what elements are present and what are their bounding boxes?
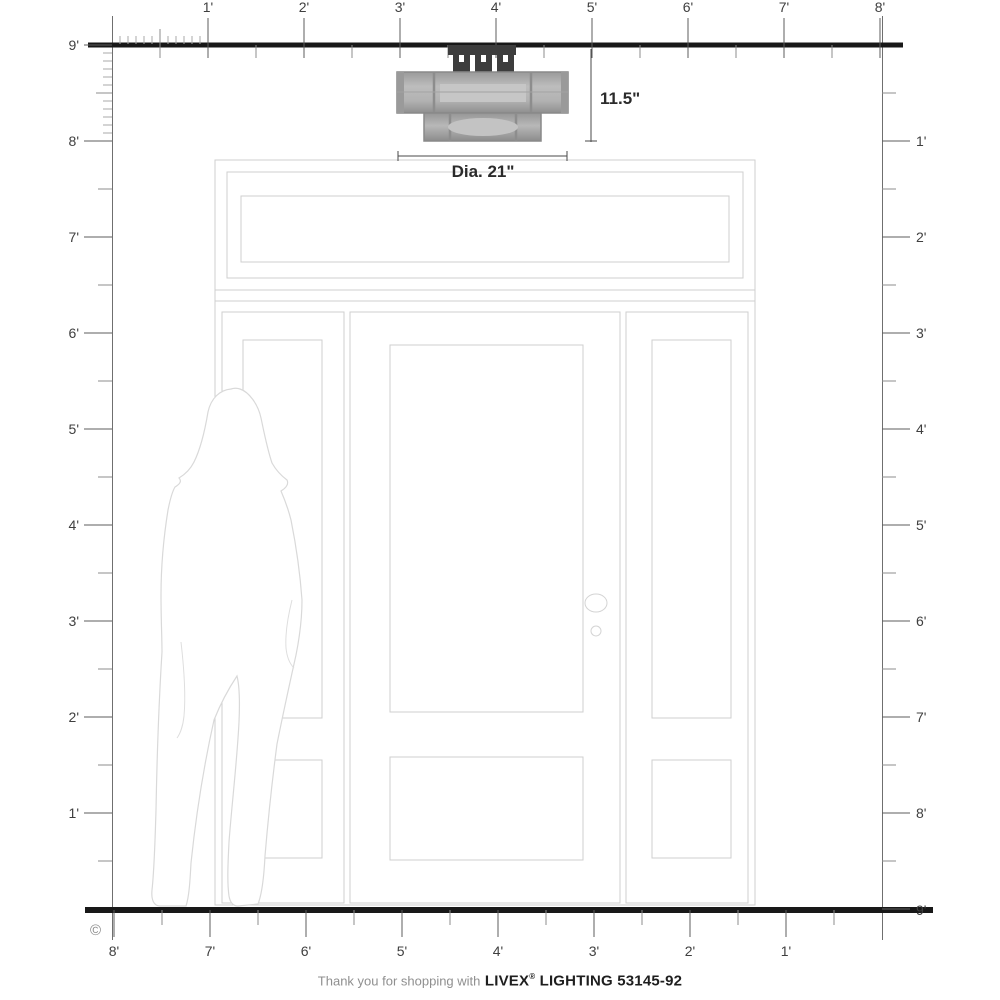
left-label-7ft: 7'	[69, 229, 79, 245]
bottom-ruler-labels: 8' 7' 6' 5' 4' 3' 2' 1'	[109, 943, 791, 959]
caption-prefix: Thank you for shopping with	[318, 973, 481, 988]
right-sidelight-upper-panel	[652, 340, 731, 718]
door-knob	[585, 594, 607, 612]
diagram-canvas: 11.5" Dia. 21" 1' 2' 3' 4' 5' 6' 7' 8' 9…	[0, 0, 1000, 1000]
top-label-1ft: 1'	[203, 0, 213, 15]
left-ruler-ticks	[84, 45, 112, 813]
product-model-number: LIGHTING 53145-92	[540, 972, 683, 989]
copyright-symbol: ©	[90, 922, 101, 939]
light-fixture	[397, 45, 568, 141]
right-label-3ft: 3'	[916, 325, 926, 341]
bottom-label-3ft: 3'	[589, 943, 599, 959]
top-label-3ft: 3'	[395, 0, 405, 15]
door-drawing	[215, 160, 755, 905]
right-label-2ft: 2'	[916, 229, 926, 245]
right-label-5ft: 5'	[916, 517, 926, 533]
bottom-label-6ft: 6'	[301, 943, 311, 959]
top-label-2ft: 2'	[299, 0, 309, 15]
top-label-8ft: 8'	[875, 0, 885, 15]
brand-name: LIVEX	[485, 972, 529, 989]
right-label-6ft: 6'	[916, 613, 926, 629]
right-ruler-half-ticks	[882, 93, 896, 861]
top-label-4ft: 4'	[491, 0, 501, 15]
human-silhouette	[152, 388, 302, 906]
left-label-4ft: 4'	[69, 517, 79, 533]
bottom-label-5ft: 5'	[397, 943, 407, 959]
right-sidelight	[626, 312, 748, 903]
left-label-2ft: 2'	[69, 709, 79, 725]
silhouette-outline	[152, 388, 302, 906]
bottom-label-2ft: 2'	[685, 943, 695, 959]
door-outer-frame	[215, 160, 755, 905]
right-ruler-labels: 1' 2' 3' 4' 5' 6' 7' 8' 9'	[916, 133, 926, 918]
right-sidelight-lower-panel	[652, 760, 731, 858]
door-deadbolt	[591, 626, 601, 636]
scale-diagram: 11.5" Dia. 21" 1' 2' 3' 4' 5' 6' 7' 8' 9…	[0, 0, 1000, 1000]
top-label-7ft: 7'	[779, 0, 789, 15]
bottom-label-8ft: 8'	[109, 943, 119, 959]
registered-trademark-symbol: ®	[529, 972, 535, 981]
left-label-5ft: 5'	[69, 421, 79, 437]
top-label-6ft: 6'	[683, 0, 693, 15]
right-label-4ft: 4'	[916, 421, 926, 437]
fixture-height-label: 11.5"	[600, 89, 640, 108]
bottom-label-1ft: 1'	[781, 943, 791, 959]
top-ruler-labels: 1' 2' 3' 4' 5' 6' 7' 8'	[203, 0, 885, 15]
left-ruler-half-ticks	[96, 93, 112, 861]
right-ruler-ticks	[882, 141, 910, 909]
left-label-8ft: 8'	[69, 133, 79, 149]
left-label-9ft: 9'	[69, 37, 79, 53]
bottom-label-7ft: 7'	[205, 943, 215, 959]
fixture-diameter-label: Dia. 21"	[452, 162, 515, 181]
transom-glass	[241, 196, 729, 262]
left-label-1ft: 1'	[69, 805, 79, 821]
footer-caption: Thank you for shopping with LIVEX® LIGHT…	[0, 972, 1000, 990]
top-label-5ft: 5'	[587, 0, 597, 15]
right-label-7ft: 7'	[916, 709, 926, 725]
left-label-6ft: 6'	[69, 325, 79, 341]
left-ruler-labels: 9' 8' 7' 6' 5' 4' 3' 2' 1'	[69, 37, 79, 821]
right-label-8ft: 8'	[916, 805, 926, 821]
bottom-label-4ft: 4'	[493, 943, 503, 959]
right-label-9ft: 9'	[916, 902, 926, 918]
door-lower-panel	[390, 757, 583, 860]
door-upper-panel	[390, 345, 583, 712]
right-label-1ft: 1'	[916, 133, 926, 149]
left-label-3ft: 3'	[69, 613, 79, 629]
